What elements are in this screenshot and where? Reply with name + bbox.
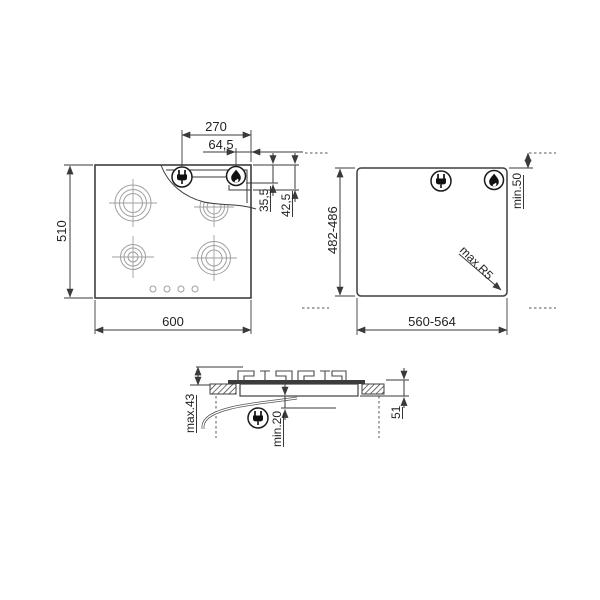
- installation-diagram-page: 270 64,5 35,5 42,5 510 600: [0, 0, 600, 600]
- dim-min20-label: min.20: [270, 411, 284, 447]
- dim-482-486-label: 482-486: [325, 206, 340, 254]
- power-plug-icon-section: [248, 408, 268, 428]
- installation-diagram: 270 64,5 35,5 42,5 510 600: [0, 0, 600, 600]
- burner-front-left-large: [109, 179, 157, 227]
- worktop-right: [362, 384, 384, 394]
- gas-flame-icon-cutout: [485, 171, 504, 190]
- dim-min50-label: min.50: [510, 173, 524, 209]
- hob-body-section: [240, 384, 358, 396]
- hob-glass-section: [228, 380, 365, 384]
- side-section-view: max.43 min.20 51: [183, 367, 409, 447]
- control-knobs: [150, 286, 198, 292]
- dim-max43-label: max.43: [183, 393, 197, 433]
- hob-top-view: 270 64,5 35,5 42,5 510 600: [54, 119, 303, 334]
- dim-64-5-label: 64,5: [208, 137, 233, 152]
- dim-560-564-label: 560-564: [408, 314, 456, 329]
- dim-42-5-label: 42,5: [279, 193, 293, 217]
- gas-flame-icon: [227, 167, 246, 186]
- burner-rear-left-small: [112, 236, 154, 278]
- power-plug-icon: [172, 167, 192, 187]
- worktop-cutout-view: min.50 482-486 560-564 max.R5: [302, 153, 556, 335]
- worktop-left: [210, 384, 236, 394]
- burner-rear-right: [191, 235, 237, 281]
- dim-600-label: 600: [162, 314, 184, 329]
- power-plug-icon-cutout: [431, 171, 451, 191]
- dim-51-label: 51: [389, 405, 403, 419]
- pan-support-profile: [238, 371, 346, 380]
- dim-270-label: 270: [205, 119, 227, 134]
- dim-35-5-label: 35,5: [257, 188, 271, 212]
- dim-510-label: 510: [54, 220, 69, 242]
